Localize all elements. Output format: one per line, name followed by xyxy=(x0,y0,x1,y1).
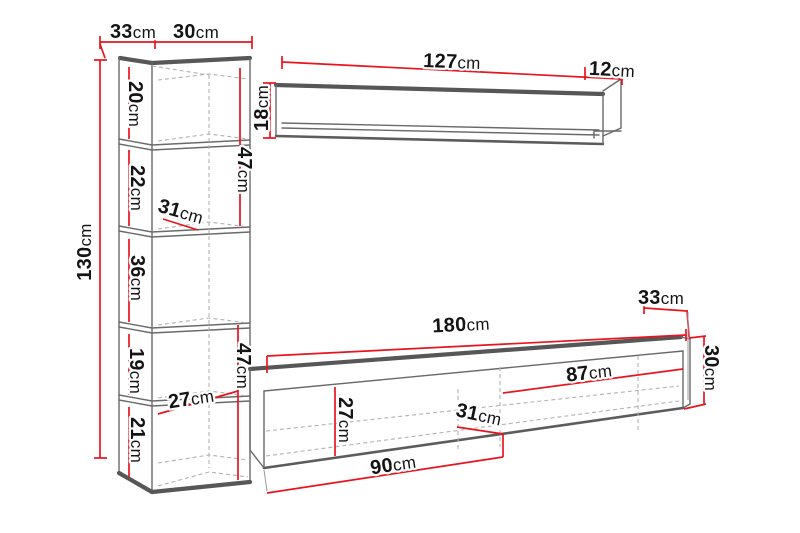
dim-label-cabinet-inner-width-lower: 27cm xyxy=(167,385,216,414)
furniture-dimension-diagram: 33cm 30cm 130cm 20cm 22cm 31cm 36cm 47cm… xyxy=(0,0,800,533)
dim-label-stand-length: 180cm xyxy=(432,313,491,338)
dim-label-stand-inner-width-31: 31cm xyxy=(454,399,504,430)
dim-label-stand-bottom-width-90: 90cm xyxy=(369,451,418,480)
dim-label-cabinet-inner-height-upper: 47cm xyxy=(233,147,255,193)
dim-label-cabinet-inner-height-lower: 47cm xyxy=(232,343,254,389)
dim-label-cabinet-top-depth: 33cm xyxy=(110,21,156,43)
dim-label-shelf-height: 18cm xyxy=(251,85,273,131)
diagram-canvas: 33cm 30cm 130cm 20cm 22cm 31cm 36cm 47cm… xyxy=(0,0,800,533)
dim-label-stand-depth: 33cm xyxy=(638,287,684,309)
dim-label-shelf-end-depth: 12cm xyxy=(588,58,635,82)
dim-label-cabinet-section-5: 21cm xyxy=(126,417,148,463)
dimension-lines xyxy=(94,36,706,493)
dim-label-cabinet-section-4: 19cm xyxy=(125,348,147,394)
dim-label-cabinet-height: 130cm xyxy=(74,223,96,281)
dim-label-cabinet-section-3: 36cm xyxy=(126,255,148,301)
dim-label-shelf-length: 127cm xyxy=(423,50,481,74)
dim-label-stand-inner-width-87: 87cm xyxy=(565,359,613,386)
dim-label-stand-height: 30cm xyxy=(700,345,722,391)
dim-label-cabinet-section-1: 20cm xyxy=(124,81,146,127)
wall-shelf-outline xyxy=(276,79,621,144)
dim-label-cabinet-top-width: 30cm xyxy=(173,21,219,43)
dim-label-cabinet-section-2: 22cm xyxy=(126,165,148,211)
dim-label-stand-inner-height-27: 27cm xyxy=(334,397,356,443)
